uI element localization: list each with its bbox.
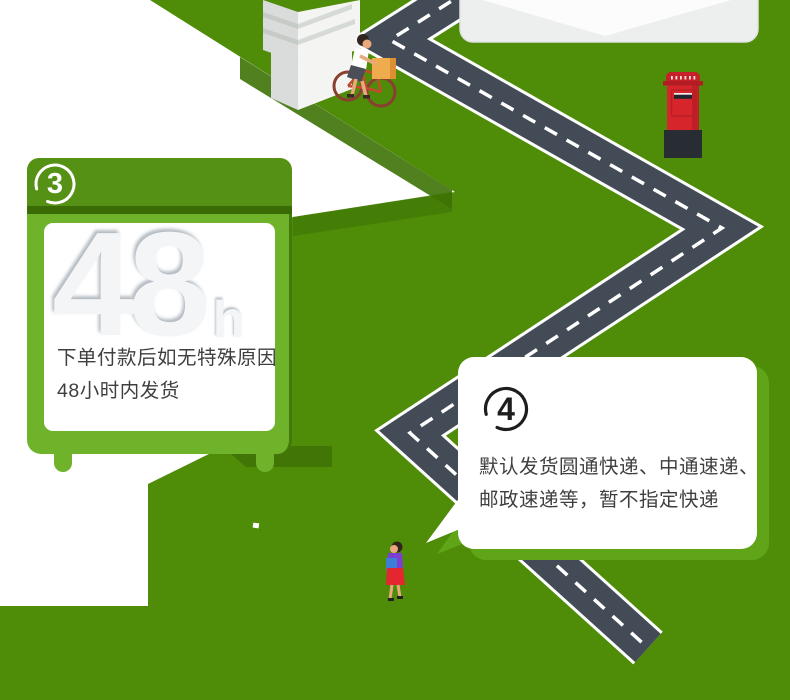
postbox-icon [663,72,703,158]
step4-caption-line2: 邮政速递等，暂不指定快递 [479,484,759,517]
step3-caption-line1: 下单付款后如无特殊原因 [57,342,277,375]
step3-caption: 下单付款后如无特殊原因 48小时内发货 [57,342,277,408]
building-icon [263,0,360,110]
envelope-icon [460,0,758,42]
ground-dot [253,523,260,529]
hours-display: 48 h [52,226,244,344]
pedestrian-icon [386,542,405,602]
step3-number-badge: 3 [33,162,77,206]
step4-number: 4 [497,391,515,428]
step3-caption-line2: 48小时内发货 [57,375,277,408]
hours-value: 48 [52,226,205,344]
step4-caption: 默认发货圆通快递、中通速递、 邮政速递等，暂不指定快递 [479,451,759,517]
hours-unit: h [213,298,245,342]
step3-number: 3 [47,168,63,201]
infographic-canvas: 3 48 h 下单付款后如无特殊原因 48小时内发货 4 默认发货圆通快递、中通… [0,0,790,700]
step4-number-badge: 4 [483,386,529,432]
step4-caption-line1: 默认发货圆通快递、中通速递、 [479,451,759,484]
